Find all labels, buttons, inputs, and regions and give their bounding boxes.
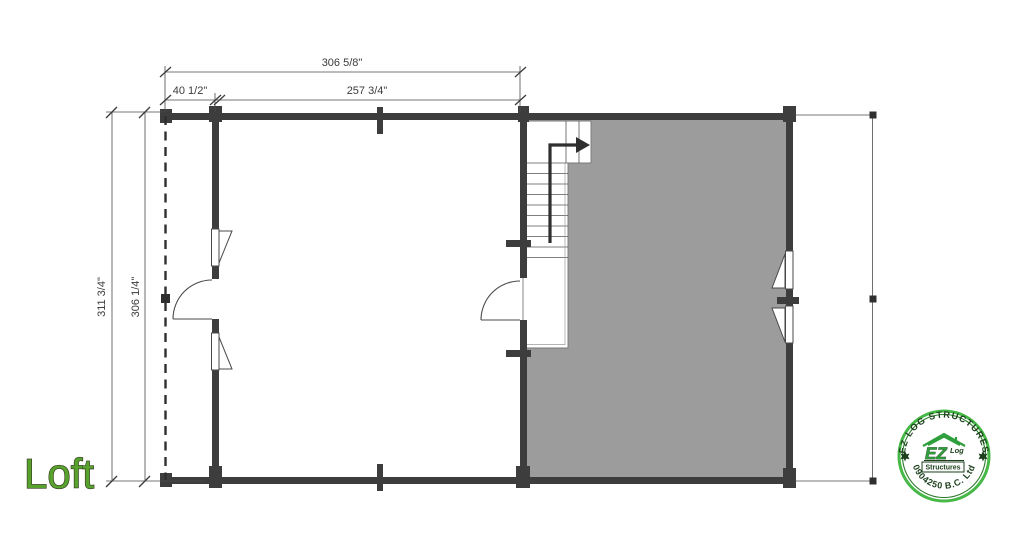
window-mullion xyxy=(777,297,799,304)
dim-top-right-segment: 257 3/4" xyxy=(347,85,388,97)
door-left xyxy=(173,280,212,319)
dim-side-inner: 306 1/4" xyxy=(130,277,142,318)
dim-top-left-segment: 40 1/2" xyxy=(173,85,208,97)
window-left-lower xyxy=(212,333,233,370)
wall-stub xyxy=(506,240,531,247)
floor-plan-drawing: 306 5/8" 40 1/2" 257 3/4" 311 3/4" 306 1… xyxy=(0,0,1024,554)
wall-stub xyxy=(506,350,531,357)
dim-top-total: 306 5/8" xyxy=(322,57,363,69)
wall-top xyxy=(161,113,795,120)
post xyxy=(783,106,796,122)
dim-side-outer: 311 3/4" xyxy=(96,277,108,317)
emblem-log-text: Log xyxy=(950,446,964,455)
wall-left xyxy=(212,113,219,229)
wall-right xyxy=(786,113,793,251)
wall-bottom xyxy=(161,477,795,484)
post xyxy=(209,466,222,488)
post xyxy=(377,464,383,491)
post xyxy=(516,466,530,488)
post xyxy=(377,107,383,134)
window-left-upper xyxy=(212,229,233,266)
emblem-structures-text: Structures xyxy=(925,465,960,472)
floor-plan-page: 306 5/8" 40 1/2" 257 3/4" 311 3/4" 306 1… xyxy=(0,0,1024,554)
open-wall-dashed-line xyxy=(161,116,170,480)
wall-middle xyxy=(520,120,527,278)
post xyxy=(209,106,222,122)
post xyxy=(783,468,796,488)
door-middle xyxy=(481,281,520,320)
company-stamp: EZ LOG STRUCTURES 0904250 B.C. Ltd EZ Lo… xyxy=(897,410,991,501)
page-title: Loft xyxy=(24,450,94,497)
